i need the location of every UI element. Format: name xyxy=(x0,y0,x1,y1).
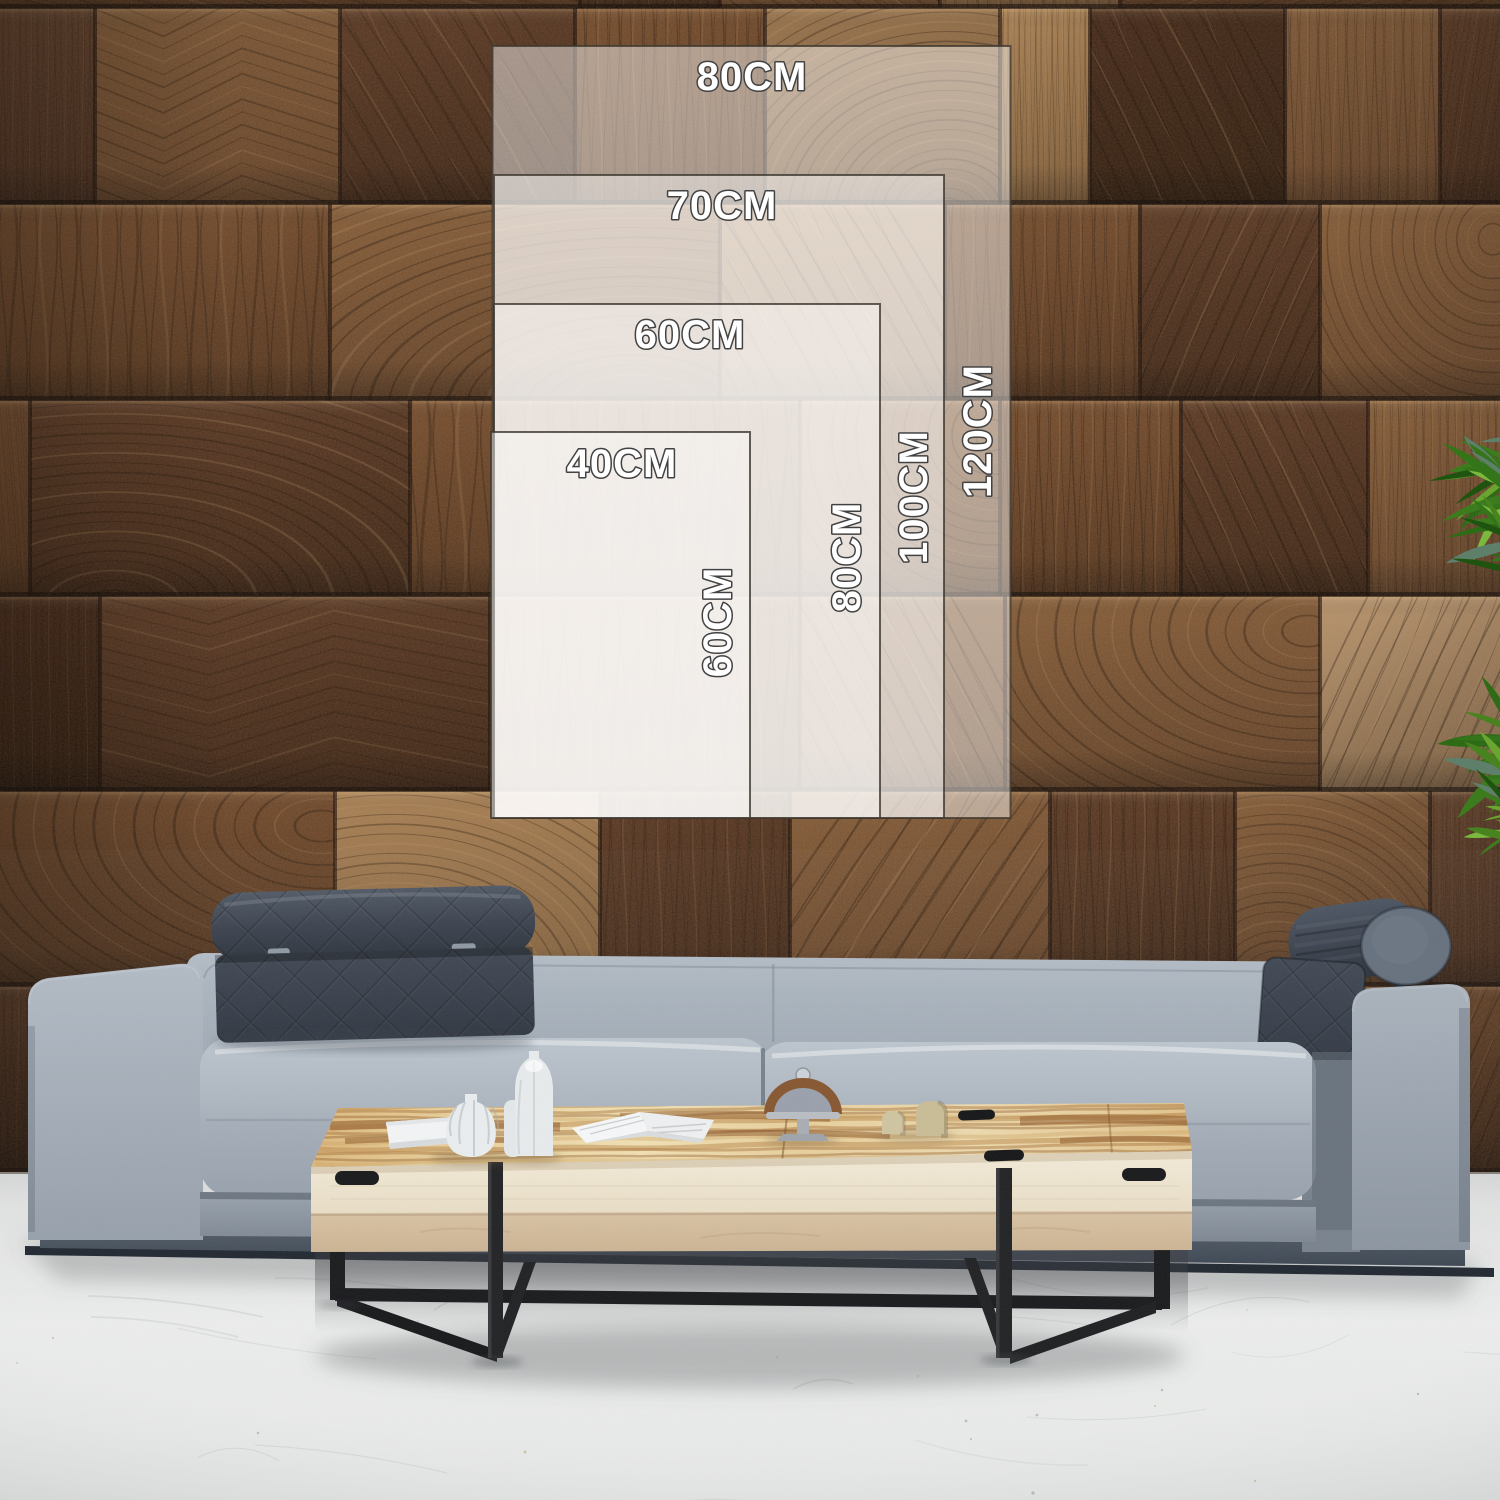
svg-text:60CM: 60CM xyxy=(635,313,746,357)
svg-text:80CM: 80CM xyxy=(825,502,869,613)
svg-text:80CM: 80CM xyxy=(697,55,808,99)
svg-text:120CM: 120CM xyxy=(956,364,1000,498)
svg-text:60CM: 60CM xyxy=(696,567,740,678)
svg-text:100CM: 100CM xyxy=(892,430,936,564)
svg-text:70CM: 70CM xyxy=(667,184,778,228)
svg-text:40CM: 40CM xyxy=(567,442,678,486)
